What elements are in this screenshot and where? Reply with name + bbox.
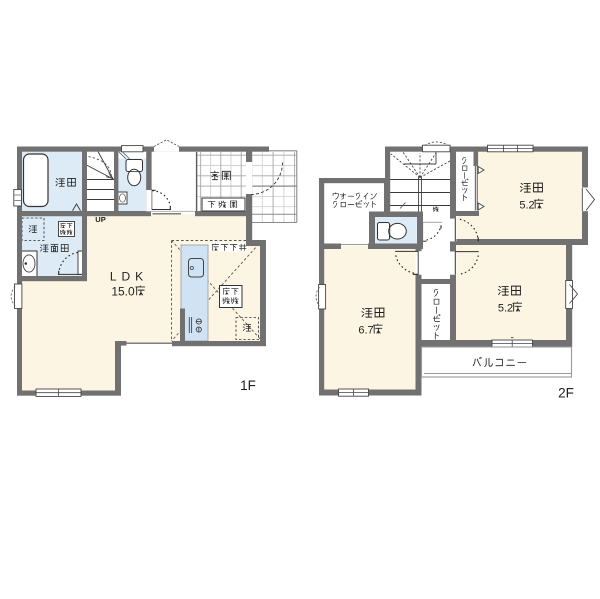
svg-text:1F: 1F (240, 378, 256, 393)
svg-text:2F: 2F (558, 386, 574, 401)
svg-text:15.0: 15.0 (111, 285, 135, 299)
svg-text:UP: UP (95, 215, 105, 224)
svg-text:5.2: 5.2 (519, 200, 534, 212)
svg-text:LDK: LDK (110, 270, 148, 284)
svg-text:6.7: 6.7 (358, 325, 373, 337)
svg-text:5.2: 5.2 (498, 303, 513, 315)
